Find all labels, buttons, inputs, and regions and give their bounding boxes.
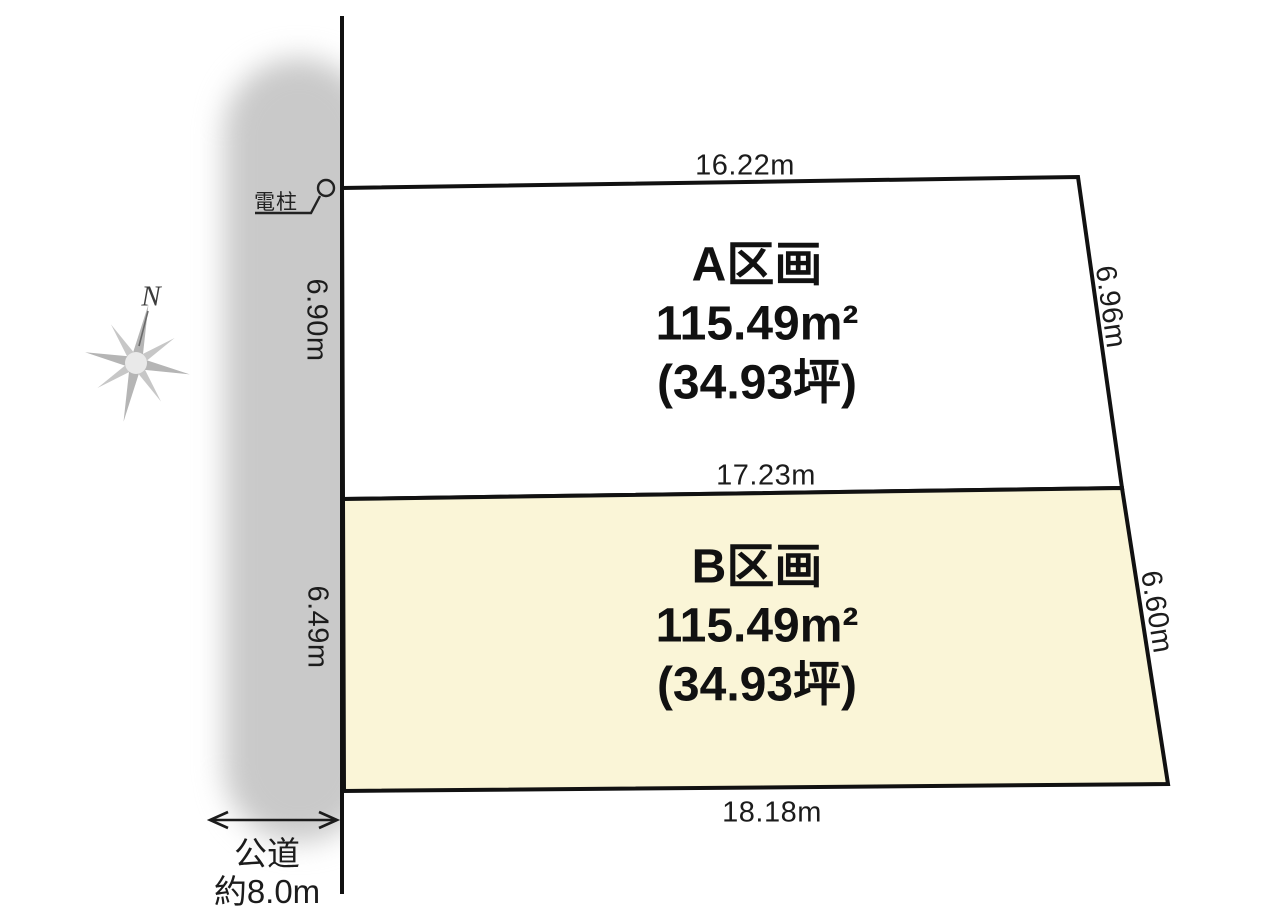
diagram-canvas [0,0,1280,924]
parcel-a-area: 115.49m² [656,295,859,354]
road-name: 公道 [214,835,320,873]
dim-a-top-label: 16.22m [695,150,795,183]
road-width-value: 約8.0m [214,873,320,911]
utility-pole-label: 電柱 [254,186,298,216]
dim-b-bottom-label: 18.18m [722,797,822,830]
parcel-a-name: A区画 [656,236,859,295]
parcel-b-label: B区画 115.49m² (34.93坪) [656,538,859,715]
dim-a-left-label: 6.90m [300,278,333,361]
road-width-arrow [210,812,337,828]
north-label: N [141,281,160,314]
parcel-b-name: B区画 [656,538,859,597]
road-label: 公道 約8.0m [214,835,320,911]
parcel-a-label: A区画 115.49m² (34.93坪) [656,236,859,413]
dim-ab-boundary-label: 17.23m [716,460,816,493]
parcel-b-area: 115.49m² [656,597,859,656]
dim-b-left-label: 6.49m [301,585,334,668]
parcel-a-tsubo: (34.93坪) [656,354,859,413]
compass-rose-icon [84,303,191,423]
parcel-b-tsubo: (34.93坪) [656,656,859,715]
plot-diagram: N 16.22m 17.23m 18.18m 6.90m 6.49m 6.96m… [0,0,1280,924]
